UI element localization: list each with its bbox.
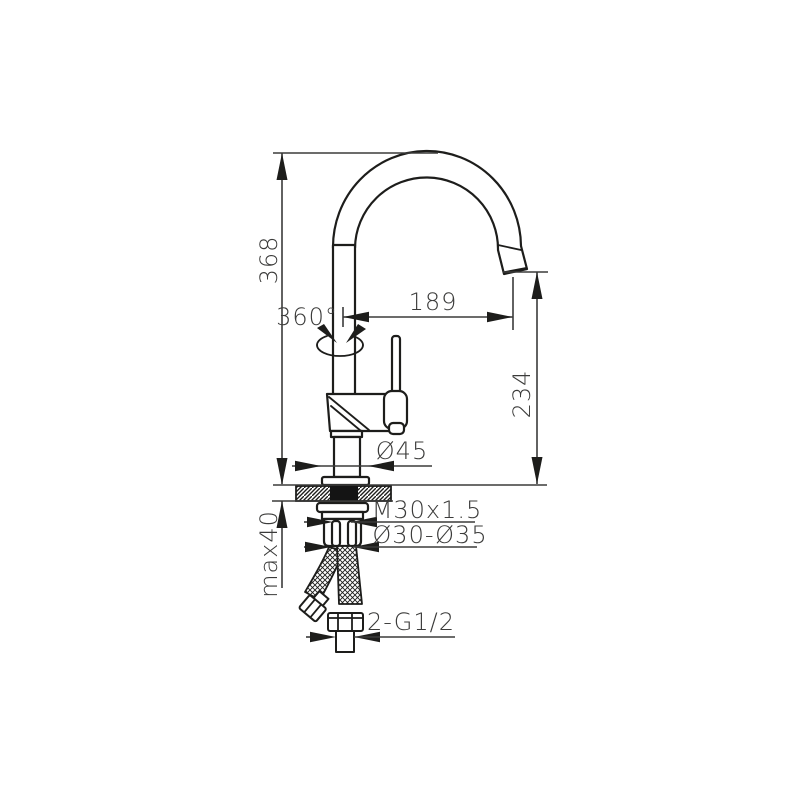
hose-fitting-bottom <box>328 613 363 652</box>
connection-pipe-g12 <box>336 631 354 652</box>
label-mounting-thread: M30x1.5 <box>372 496 483 524</box>
dimension-outlet-height: 234 <box>503 272 548 484</box>
dimension-base-diameter: Ø45 <box>292 437 432 471</box>
drawing-canvas: 368 189 360° 234 Ø45 max40 <box>0 0 800 800</box>
mixer-body <box>327 394 390 431</box>
label-base-diameter: Ø45 <box>376 437 428 465</box>
label-supply-connection: 2-G1/2 <box>367 608 455 636</box>
label-swivel-angle: 360° <box>276 303 338 331</box>
hose-right-braided <box>337 546 362 604</box>
arrow-right-icon <box>295 461 321 471</box>
base-column <box>334 437 360 477</box>
faucet-technical-drawing: 368 189 360° 234 Ø45 max40 <box>0 0 800 800</box>
handle-grip-tip <box>389 423 404 434</box>
locking-flange <box>317 503 368 512</box>
shank-stud-right <box>348 521 356 546</box>
arrow-right-icon <box>310 632 336 642</box>
label-outlet-height: 234 <box>508 370 536 419</box>
mounting-hardware <box>317 503 368 546</box>
label-mounting-hole-range: Ø30-Ø35 <box>372 521 487 549</box>
label-total-height: 368 <box>255 236 283 285</box>
shank-stud-left <box>332 521 340 546</box>
gooseneck-spout <box>333 151 527 274</box>
handle-lever-rod <box>392 336 400 396</box>
arrow-down-icon <box>532 457 543 484</box>
arrow-up-icon <box>277 153 288 180</box>
dimension-max-deck-thickness: max40 <box>255 501 288 598</box>
arrow-up-icon <box>532 272 543 299</box>
dimension-spout-reach: 189 <box>343 288 513 327</box>
label-max-deck-thickness: max40 <box>255 510 283 598</box>
arrow-right-icon <box>487 312 513 322</box>
faucet-shank-through-deck <box>330 486 358 501</box>
label-spout-reach: 189 <box>409 288 458 316</box>
base-flange <box>322 477 369 485</box>
arrow-down-icon <box>277 458 288 485</box>
